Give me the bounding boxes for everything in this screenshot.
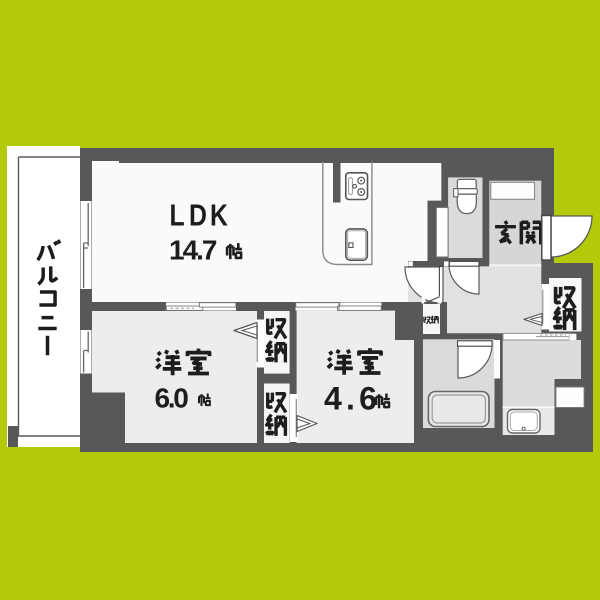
svg-text:4.6: 4.6 [324,381,381,417]
svg-text:6.0: 6.0 [155,382,189,413]
svg-text:14.7: 14.7 [169,234,217,265]
svg-text:LDK: LDK [170,198,228,232]
